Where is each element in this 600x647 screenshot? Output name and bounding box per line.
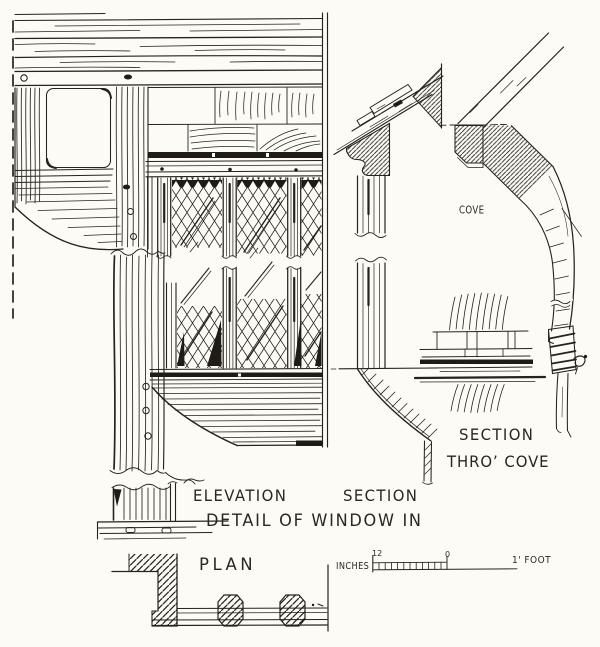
peg [126,528,135,533]
label-elevation: ELEVATION [193,488,287,504]
label-cove: COVE [459,205,484,215]
peg [124,75,132,80]
peg [21,75,27,81]
peg [123,185,130,190]
label-section-thro-cove-line2: THRO’ COVE [447,454,550,470]
cove-sill-band [415,293,545,413]
mullion-plan [218,595,243,626]
label-plan: PLAN [199,557,256,574]
elevation-drawing [13,13,328,539]
mullion-plan [280,595,305,626]
scale-right-label: 1' FOOT [512,556,551,566]
section-drawing [331,64,443,484]
window-sill [143,369,322,447]
label-section-thro-cove-line1: SECTION [459,427,534,443]
peg [162,528,171,533]
drawing-linework [0,0,600,647]
cove-bracket [455,126,483,164]
peg [128,209,134,215]
brick-infill [148,87,322,151]
scale-start-value: 12 [372,550,382,558]
plaster-panel [47,89,111,168]
lower-window-lights [167,262,322,368]
curved-brace [15,207,123,250]
scale-left-label: INCHES [336,562,369,572]
cove-curve-inner [520,199,555,331]
drawing-title: DETAIL OF WINDOW IN [206,513,423,530]
peg [143,383,149,389]
architectural-drawing-page: COVE ELEVATION SECTION DETAIL OF WINDOW … [0,0,600,647]
label-section: SECTION [343,488,418,504]
scale-zero-value: 0 [445,551,450,559]
upper-window-lights [148,177,322,258]
